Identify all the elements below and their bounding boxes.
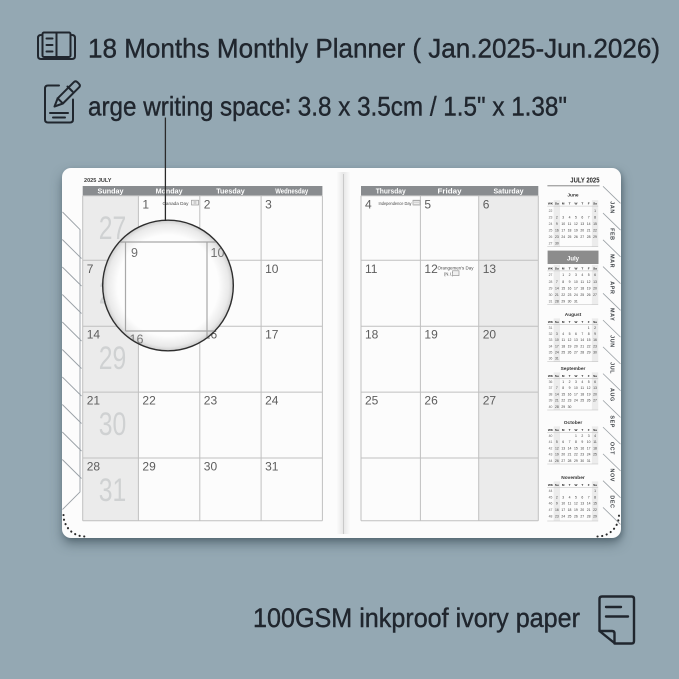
- svg-text:18: 18: [580, 392, 584, 396]
- svg-text:Thursday: Thursday: [376, 187, 407, 196]
- svg-text:4: 4: [594, 434, 596, 438]
- svg-text:Su: Su: [555, 266, 559, 270]
- svg-text:14: 14: [580, 338, 584, 342]
- svg-text:15: 15: [593, 222, 597, 226]
- svg-text:13: 13: [593, 386, 597, 390]
- svg-text:21: 21: [580, 344, 584, 348]
- svg-text:31: 31: [99, 472, 127, 508]
- svg-text:8: 8: [562, 280, 564, 284]
- svg-text:33: 33: [549, 338, 553, 342]
- svg-text:22: 22: [593, 228, 597, 232]
- svg-text:32: 32: [549, 332, 553, 336]
- svg-text:5: 5: [556, 440, 558, 444]
- svg-text:11: 11: [581, 386, 585, 390]
- svg-text:2: 2: [204, 197, 211, 211]
- svg-text:19: 19: [424, 328, 438, 342]
- svg-text:M: M: [562, 266, 565, 270]
- svg-text:Friday: Friday: [438, 187, 463, 196]
- svg-text:27: 27: [593, 293, 597, 297]
- svg-text:Su: Su: [555, 320, 559, 324]
- svg-text:16: 16: [568, 286, 572, 290]
- svg-text:4: 4: [581, 273, 583, 277]
- svg-text:42: 42: [549, 446, 553, 450]
- svg-text:APR: APR: [609, 281, 615, 294]
- svg-text:15: 15: [593, 502, 597, 506]
- svg-text:9: 9: [569, 386, 571, 390]
- svg-text:M: M: [562, 374, 565, 378]
- svg-text:44: 44: [549, 459, 553, 463]
- svg-text:August: August: [565, 312, 582, 318]
- svg-text:27: 27: [574, 350, 578, 354]
- svg-text:T: T: [581, 320, 583, 324]
- svg-text:25: 25: [549, 228, 553, 232]
- svg-text:WK: WK: [548, 202, 554, 206]
- svg-text:30: 30: [580, 459, 584, 463]
- svg-text:10: 10: [587, 440, 591, 444]
- svg-text:29: 29: [593, 514, 597, 518]
- svg-text:17: 17: [561, 228, 565, 232]
- svg-text:24: 24: [265, 394, 279, 408]
- svg-text:9: 9: [594, 332, 596, 336]
- svg-text:26: 26: [587, 293, 591, 297]
- svg-text:Monday: Monday: [156, 187, 184, 196]
- svg-text:Canada Day: Canada Day: [163, 201, 190, 206]
- svg-text:47: 47: [549, 508, 553, 512]
- svg-text:10: 10: [265, 262, 279, 276]
- svg-text:6: 6: [575, 332, 577, 336]
- svg-text:23: 23: [593, 344, 597, 348]
- svg-text:40: 40: [549, 405, 553, 409]
- svg-text:4: 4: [581, 380, 583, 384]
- svg-text:11: 11: [568, 502, 572, 506]
- svg-text:MAR: MAR: [609, 254, 615, 268]
- svg-text:25: 25: [568, 235, 572, 239]
- svg-text:10: 10: [574, 280, 578, 284]
- svg-text:23: 23: [204, 394, 218, 408]
- svg-text:23: 23: [549, 215, 553, 219]
- svg-text:19: 19: [587, 286, 591, 290]
- svg-text:18: 18: [568, 228, 572, 232]
- svg-text:1: 1: [588, 326, 590, 330]
- svg-text:36: 36: [549, 357, 553, 361]
- svg-text:31: 31: [587, 459, 591, 463]
- svg-text:WK: WK: [548, 320, 554, 324]
- svg-text:June: June: [567, 193, 579, 199]
- svg-text:T: T: [581, 374, 583, 378]
- svg-text:5: 5: [575, 215, 577, 219]
- svg-text:JAN: JAN: [609, 201, 615, 214]
- svg-text:21: 21: [555, 293, 559, 297]
- svg-text:25: 25: [593, 453, 597, 457]
- svg-text:7: 7: [588, 495, 590, 499]
- svg-text:11: 11: [581, 280, 585, 284]
- svg-text:5: 5: [588, 380, 590, 384]
- svg-text:M: M: [562, 428, 565, 432]
- svg-text:12: 12: [574, 502, 578, 506]
- svg-text:28: 28: [568, 459, 572, 463]
- svg-text:29: 29: [561, 299, 565, 303]
- svg-text:WK: WK: [548, 428, 554, 432]
- svg-text:Sa: Sa: [593, 374, 597, 378]
- svg-text:T: T: [569, 320, 571, 324]
- svg-text:15: 15: [587, 338, 591, 342]
- svg-text:7: 7: [556, 280, 558, 284]
- svg-text:28: 28: [580, 350, 584, 354]
- svg-text:F: F: [588, 320, 590, 324]
- svg-text:9: 9: [556, 502, 558, 506]
- svg-text:20: 20: [483, 328, 497, 342]
- svg-text:JUN: JUN: [609, 335, 615, 348]
- svg-text:24: 24: [561, 514, 565, 518]
- svg-text:FEB: FEB: [609, 228, 615, 241]
- svg-text:13: 13: [574, 338, 578, 342]
- svg-text:40: 40: [549, 434, 553, 438]
- svg-text:16: 16: [555, 508, 559, 512]
- svg-text:30: 30: [568, 405, 572, 409]
- svg-text:19: 19: [587, 392, 591, 396]
- svg-text:July: July: [567, 256, 580, 262]
- svg-text:10: 10: [555, 338, 559, 342]
- svg-text:21: 21: [87, 394, 101, 408]
- svg-text:23: 23: [568, 399, 572, 403]
- svg-text:9: 9: [581, 440, 583, 444]
- svg-text:14: 14: [555, 392, 559, 396]
- svg-text:25: 25: [580, 293, 584, 297]
- svg-text:28: 28: [587, 514, 591, 518]
- svg-text:11: 11: [593, 440, 597, 444]
- svg-text:20: 20: [580, 228, 584, 232]
- svg-text:F: F: [588, 483, 590, 487]
- svg-text:4: 4: [569, 495, 571, 499]
- svg-text:M: M: [562, 483, 565, 487]
- svg-text:13: 13: [561, 446, 565, 450]
- svg-text:20: 20: [561, 453, 565, 457]
- svg-text:JULY 2025: JULY 2025: [570, 175, 599, 184]
- svg-text:T: T: [569, 374, 571, 378]
- svg-text:29: 29: [587, 350, 591, 354]
- svg-text:W: W: [574, 320, 577, 324]
- svg-text:10: 10: [561, 222, 565, 226]
- svg-text:2: 2: [569, 273, 571, 277]
- svg-text:27: 27: [483, 394, 497, 408]
- svg-text:20: 20: [593, 392, 597, 396]
- svg-text:5: 5: [569, 332, 571, 336]
- svg-text:7: 7: [581, 332, 583, 336]
- svg-text:29: 29: [593, 235, 597, 239]
- svg-text:WK: WK: [548, 374, 554, 378]
- svg-text:17: 17: [561, 508, 565, 512]
- svg-text:16: 16: [568, 392, 572, 396]
- svg-text:22: 22: [593, 508, 597, 512]
- svg-text:WK: WK: [548, 483, 554, 487]
- svg-text:3: 3: [575, 273, 577, 277]
- svg-text:29: 29: [99, 340, 127, 376]
- svg-text:Su: Su: [555, 374, 559, 378]
- svg-text:30: 30: [593, 350, 597, 354]
- svg-text:28: 28: [549, 280, 553, 284]
- svg-text:7: 7: [588, 215, 590, 219]
- svg-text:3: 3: [588, 434, 590, 438]
- svg-text:2025 JULY: 2025 JULY: [84, 178, 112, 184]
- svg-text:W: W: [574, 266, 577, 270]
- svg-text:13: 13: [483, 262, 497, 276]
- svg-text:1: 1: [562, 380, 564, 384]
- svg-text:3: 3: [265, 197, 272, 211]
- svg-text:6: 6: [594, 380, 596, 384]
- svg-text:16: 16: [580, 446, 584, 450]
- svg-text:30: 30: [555, 242, 559, 246]
- svg-text:29: 29: [142, 460, 156, 474]
- svg-text:30: 30: [99, 406, 127, 442]
- svg-text:3: 3: [562, 495, 564, 499]
- svg-text:20: 20: [593, 286, 597, 290]
- svg-text:46: 46: [549, 502, 553, 506]
- svg-text:18: 18: [593, 446, 597, 450]
- svg-text:Saturday: Saturday: [494, 187, 525, 196]
- svg-text:21: 21: [587, 228, 591, 232]
- svg-text:M: M: [562, 202, 565, 206]
- svg-text:T: T: [569, 266, 571, 270]
- svg-text:MAY: MAY: [609, 308, 615, 321]
- svg-text:19: 19: [568, 344, 572, 348]
- svg-text:8: 8: [562, 386, 564, 390]
- svg-text:22: 22: [142, 394, 156, 408]
- svg-text:18: 18: [580, 286, 584, 290]
- svg-text:7: 7: [87, 262, 94, 276]
- svg-text:26: 26: [574, 514, 578, 518]
- svg-text:10: 10: [574, 386, 578, 390]
- svg-text:37: 37: [549, 386, 553, 390]
- svg-text:14: 14: [568, 446, 572, 450]
- svg-text:T: T: [581, 266, 583, 270]
- svg-text:19: 19: [574, 508, 578, 512]
- svg-text:JUL: JUL: [609, 362, 615, 374]
- svg-text:Independence Day: Independence Day: [379, 201, 413, 206]
- svg-text:31: 31: [549, 326, 553, 330]
- svg-text:17: 17: [587, 446, 591, 450]
- svg-text:Sa: Sa: [593, 483, 597, 487]
- svg-text:15: 15: [574, 446, 578, 450]
- svg-text:12: 12: [587, 280, 591, 284]
- svg-text:31: 31: [265, 460, 279, 474]
- svg-text:22: 22: [561, 399, 565, 403]
- svg-text:38: 38: [549, 392, 553, 396]
- svg-text:AUG: AUG: [609, 388, 615, 402]
- svg-text:21: 21: [555, 399, 559, 403]
- svg-text:26: 26: [587, 399, 591, 403]
- svg-text:Sa: Sa: [593, 428, 597, 432]
- svg-text:27: 27: [580, 514, 584, 518]
- svg-text:2: 2: [569, 380, 571, 384]
- svg-text:18: 18: [568, 508, 572, 512]
- svg-text:29: 29: [549, 286, 553, 290]
- svg-text:2: 2: [556, 495, 558, 499]
- svg-text:12: 12: [587, 386, 591, 390]
- svg-text:arge writing space∶ 3.8 x 3.5c: arge writing space∶ 3.8 x 3.5cm / 1.5" x…: [88, 92, 567, 122]
- svg-text:5: 5: [424, 197, 431, 211]
- svg-text:W: W: [574, 374, 577, 378]
- svg-text:W: W: [574, 483, 577, 487]
- svg-text:2: 2: [594, 326, 596, 330]
- svg-text:15: 15: [561, 392, 565, 396]
- svg-text:Sa: Sa: [593, 202, 597, 206]
- svg-text:20: 20: [574, 344, 578, 348]
- svg-text:25: 25: [561, 350, 565, 354]
- svg-text:W: W: [574, 202, 577, 206]
- svg-text:Su: Su: [555, 428, 559, 432]
- svg-text:19: 19: [574, 228, 578, 232]
- svg-text:26: 26: [555, 459, 559, 463]
- svg-text:5: 5: [575, 495, 577, 499]
- svg-text:21: 21: [587, 508, 591, 512]
- svg-text:27: 27: [549, 242, 553, 246]
- svg-text:17: 17: [555, 344, 559, 348]
- svg-text:28: 28: [555, 405, 559, 409]
- svg-text:25: 25: [365, 394, 379, 408]
- svg-text:3: 3: [562, 215, 564, 219]
- svg-text:4: 4: [365, 197, 372, 211]
- svg-text:T: T: [569, 483, 571, 487]
- svg-text:34: 34: [549, 344, 553, 348]
- svg-text:16: 16: [593, 338, 597, 342]
- svg-text:8: 8: [594, 215, 596, 219]
- svg-text:9: 9: [569, 280, 571, 284]
- svg-text:13: 13: [580, 222, 584, 226]
- svg-text:24: 24: [574, 293, 578, 297]
- svg-text:23: 23: [555, 235, 559, 239]
- svg-text:13: 13: [593, 280, 597, 284]
- svg-text:23: 23: [568, 293, 572, 297]
- svg-text:12: 12: [568, 338, 572, 342]
- svg-text:17: 17: [574, 286, 578, 290]
- svg-text:25: 25: [580, 399, 584, 403]
- svg-text:6: 6: [581, 215, 583, 219]
- svg-text:30: 30: [204, 460, 218, 474]
- svg-text:WK: WK: [548, 266, 554, 270]
- svg-text:13: 13: [580, 502, 584, 506]
- svg-text:3: 3: [556, 332, 558, 336]
- svg-text:DEC: DEC: [609, 495, 615, 508]
- svg-text:8: 8: [588, 332, 590, 336]
- svg-text:F: F: [588, 202, 590, 206]
- svg-text:9: 9: [556, 222, 558, 226]
- svg-text:48: 48: [549, 514, 553, 518]
- svg-text:14: 14: [87, 328, 101, 342]
- svg-text:November: November: [561, 475, 585, 481]
- svg-text:31: 31: [549, 299, 553, 303]
- svg-text:OCT: OCT: [609, 442, 615, 455]
- svg-text:Wednesday: Wednesday: [275, 187, 309, 196]
- svg-text:NOV: NOV: [609, 468, 615, 481]
- svg-text:28: 28: [87, 460, 101, 474]
- svg-text:Orangemen's Day: Orangemen's Day: [438, 265, 475, 270]
- svg-text:35: 35: [549, 350, 553, 354]
- svg-text:45: 45: [549, 495, 553, 499]
- svg-text:23: 23: [555, 514, 559, 518]
- svg-text:T: T: [569, 428, 571, 432]
- svg-text:12: 12: [424, 262, 438, 276]
- svg-text:Sunday: Sunday: [98, 187, 125, 196]
- svg-text:30: 30: [549, 293, 553, 297]
- svg-text:1: 1: [594, 489, 596, 493]
- svg-text:Su: Su: [555, 202, 559, 206]
- svg-text:23: 23: [580, 453, 584, 457]
- svg-text:7: 7: [556, 386, 558, 390]
- svg-text:27: 27: [549, 273, 553, 277]
- svg-text:6: 6: [562, 440, 564, 444]
- svg-text:17: 17: [265, 328, 279, 342]
- svg-text:W: W: [574, 428, 577, 432]
- svg-text:F: F: [588, 266, 590, 270]
- svg-text:T: T: [581, 483, 583, 487]
- svg-text:21: 21: [568, 453, 572, 457]
- svg-text:16: 16: [555, 228, 559, 232]
- svg-text:6: 6: [581, 495, 583, 499]
- svg-text:26: 26: [568, 350, 572, 354]
- svg-text:8: 8: [594, 495, 596, 499]
- svg-text:2: 2: [556, 215, 558, 219]
- svg-text:T: T: [569, 202, 571, 206]
- svg-text:100GSM inkproof ivory paper: 100GSM inkproof ivory paper: [253, 603, 580, 633]
- svg-text:31: 31: [574, 299, 578, 303]
- svg-text:September: September: [561, 366, 586, 372]
- svg-text:2: 2: [581, 434, 583, 438]
- svg-text:15: 15: [561, 286, 565, 290]
- svg-text:24: 24: [587, 453, 591, 457]
- svg-text:14: 14: [587, 222, 591, 226]
- svg-text:26: 26: [424, 394, 438, 408]
- svg-text:Su: Su: [555, 483, 559, 487]
- svg-text:27: 27: [561, 459, 565, 463]
- svg-text:Tuesday: Tuesday: [216, 187, 245, 196]
- svg-text:11: 11: [561, 338, 565, 342]
- svg-text:41: 41: [549, 440, 553, 444]
- svg-text:18: 18: [365, 328, 379, 342]
- svg-text:17: 17: [574, 392, 578, 396]
- svg-text:1: 1: [575, 434, 577, 438]
- svg-text:14: 14: [587, 502, 591, 506]
- svg-text:Sa: Sa: [593, 320, 597, 324]
- svg-text:October: October: [564, 420, 583, 426]
- svg-text:14: 14: [555, 286, 559, 290]
- svg-text:18: 18: [561, 344, 565, 348]
- svg-text:28: 28: [587, 235, 591, 239]
- svg-text:24: 24: [561, 235, 565, 239]
- svg-text:18 Months Monthly Planner ( Ja: 18 Months Monthly Planner ( Jan.2025-Jun…: [88, 34, 660, 64]
- svg-text:6: 6: [483, 197, 490, 211]
- svg-text:1: 1: [562, 273, 564, 277]
- svg-text:28: 28: [555, 299, 559, 303]
- svg-text:10: 10: [561, 502, 565, 506]
- svg-text:11: 11: [568, 222, 572, 226]
- svg-text:27: 27: [593, 399, 597, 403]
- svg-text:22: 22: [574, 453, 578, 457]
- svg-text:26: 26: [549, 235, 553, 239]
- svg-text:12: 12: [555, 446, 559, 450]
- svg-text:36: 36: [549, 380, 553, 384]
- svg-text:22: 22: [587, 344, 591, 348]
- svg-text:29: 29: [561, 405, 565, 409]
- svg-text:T: T: [581, 202, 583, 206]
- svg-text:1: 1: [142, 197, 149, 211]
- svg-text:7: 7: [569, 440, 571, 444]
- svg-text:SEP: SEP: [609, 415, 615, 428]
- svg-text:39: 39: [549, 399, 553, 403]
- svg-text:26: 26: [574, 235, 578, 239]
- svg-text:4: 4: [562, 332, 564, 336]
- svg-text:1: 1: [594, 209, 596, 213]
- svg-text:19: 19: [555, 453, 559, 457]
